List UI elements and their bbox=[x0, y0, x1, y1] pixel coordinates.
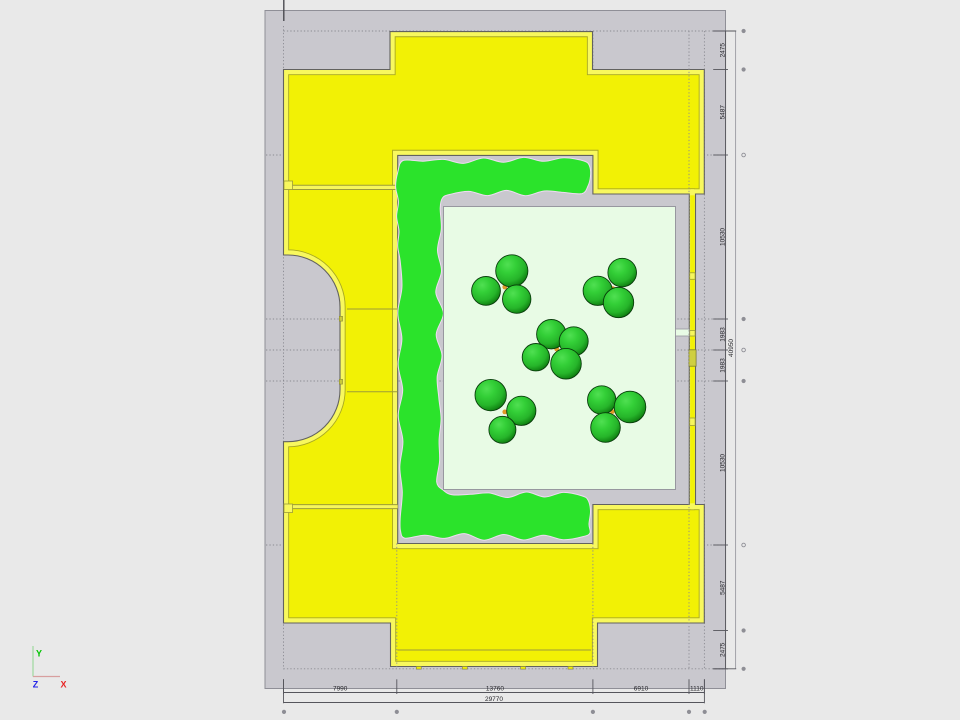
svg-text:5487: 5487 bbox=[720, 580, 727, 595]
svg-text:1983: 1983 bbox=[720, 358, 727, 373]
svg-text:29770: 29770 bbox=[485, 696, 503, 703]
svg-text:40950: 40950 bbox=[728, 339, 735, 357]
svg-text:10530: 10530 bbox=[720, 454, 727, 472]
svg-text:X: X bbox=[60, 680, 66, 690]
svg-text:5487: 5487 bbox=[720, 105, 727, 120]
svg-text:Z: Z bbox=[33, 680, 39, 690]
svg-text:2475: 2475 bbox=[720, 43, 727, 58]
svg-text:13760: 13760 bbox=[486, 686, 504, 693]
svg-text:1983: 1983 bbox=[720, 327, 727, 342]
svg-text:1110: 1110 bbox=[690, 686, 704, 693]
svg-text:2475: 2475 bbox=[720, 642, 727, 657]
svg-text:6910: 6910 bbox=[634, 686, 649, 693]
svg-text:Y: Y bbox=[36, 649, 42, 659]
svg-text:10530: 10530 bbox=[720, 228, 727, 246]
svg-text:7990: 7990 bbox=[333, 686, 348, 693]
